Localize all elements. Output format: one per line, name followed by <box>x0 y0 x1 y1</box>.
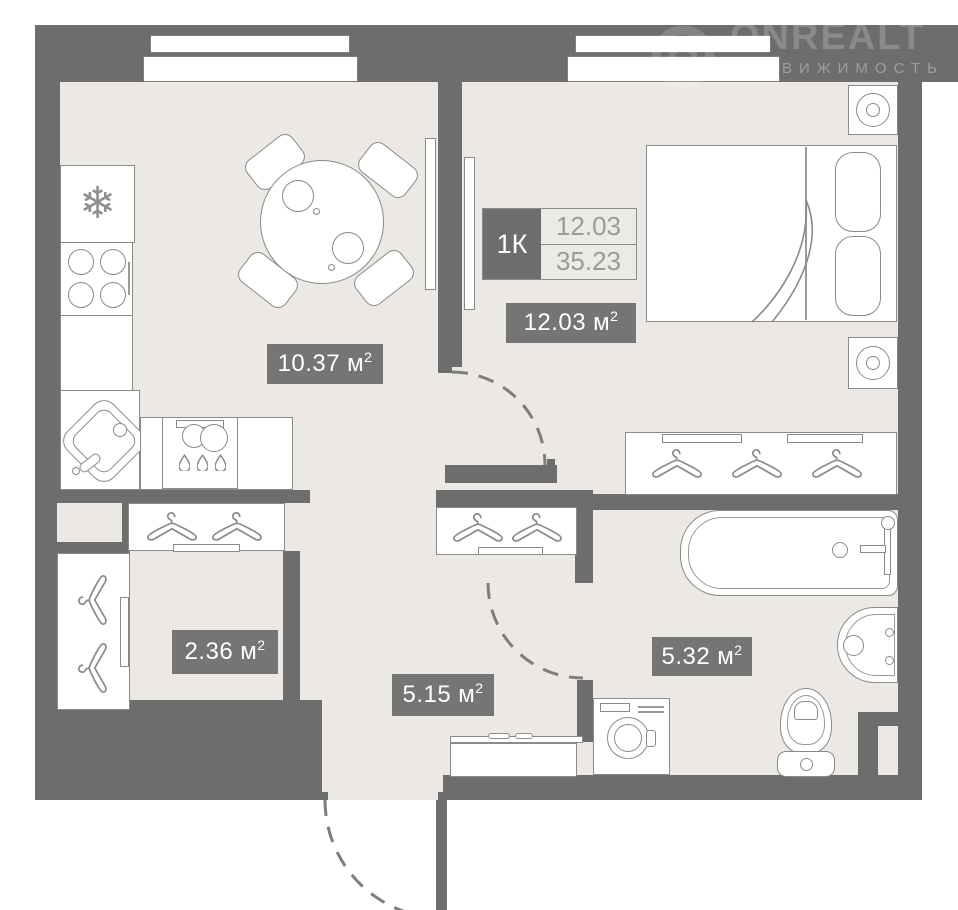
fridge: ❄ <box>60 165 135 243</box>
dining-table <box>260 160 384 284</box>
watermark: ONREALT НЕДВИЖИМОСТЬ <box>646 18 944 92</box>
wardrobe-shelf <box>787 434 863 443</box>
basin-tap <box>885 656 894 665</box>
entrance-floor-strip <box>322 775 443 800</box>
washer-door-hinge <box>646 730 656 747</box>
area-value: 10.37 <box>278 350 341 378</box>
table-spoon <box>328 264 335 271</box>
door-jamb <box>547 459 555 467</box>
bottom-wall <box>443 775 922 800</box>
burner <box>68 282 94 308</box>
area-value: 5.32 <box>661 643 710 671</box>
area-unit: м <box>240 638 257 665</box>
apartment-type-cell: 1К <box>483 209 541 279</box>
area-badge-wardrobe: 2.36 м2 <box>172 630 278 674</box>
hallway-top-wall <box>445 465 557 483</box>
bathtub-faucet-spout <box>860 545 886 553</box>
washer-detergent-tray <box>600 703 630 712</box>
wardrobe-right-wall <box>283 551 300 710</box>
area-unit: м <box>717 643 734 670</box>
kitchen-counter-left <box>60 315 133 391</box>
stove <box>60 242 133 316</box>
nightstand-lamp-center <box>866 356 880 370</box>
bed-pillow <box>835 236 881 316</box>
bathtub-inner <box>688 517 890 589</box>
washer-drum-inner <box>614 724 642 752</box>
area-badge-hallway: 5.15 м2 <box>392 674 494 716</box>
kitchen-window-inner <box>143 56 358 82</box>
door-swing-arc <box>325 800 443 910</box>
stove-handle <box>128 262 130 295</box>
washer-panel-line <box>638 711 664 713</box>
wardrobe-shelf <box>120 597 129 667</box>
bath-top-wall <box>593 494 898 510</box>
central-wall <box>438 82 462 367</box>
burner <box>100 249 126 275</box>
area-sup: 2 <box>364 349 372 365</box>
bath-duct-inset <box>878 726 898 775</box>
bed-headboard-line <box>805 147 807 320</box>
door-jamb <box>320 792 328 800</box>
room-area-cell: 12.03 <box>541 209 636 245</box>
burner <box>100 282 126 308</box>
right-wall <box>898 82 922 800</box>
area-badge-bedroom: 12.03 м2 <box>506 303 636 343</box>
watermark-tagline: НЕДВИЖИМОСТЬ <box>730 60 944 77</box>
bathtub-faucet-knob <box>881 516 895 530</box>
wardrobe-shelf <box>173 544 240 552</box>
basin-drain <box>843 635 864 656</box>
kitchen-window-outer <box>150 35 350 53</box>
console-item <box>515 733 533 739</box>
burner <box>68 249 94 275</box>
table-plate <box>332 232 364 264</box>
sliding-door-panel <box>425 138 436 290</box>
door-jamb <box>438 367 452 373</box>
hall-closet-top-wall <box>436 490 593 507</box>
toilet-flush <box>794 701 818 720</box>
area-sup: 2 <box>610 308 618 324</box>
door-jamb <box>438 792 446 800</box>
area-sup: 2 <box>734 642 742 658</box>
sink-faucet-knob <box>72 467 80 475</box>
area-badge-kitchen-living: 10.37 м2 <box>267 344 383 384</box>
snowflake-icon: ❄ <box>61 166 134 242</box>
area-unit: м <box>458 681 475 708</box>
area-value: 12.03 <box>524 309 587 337</box>
sink-drain <box>113 423 127 437</box>
total-area-cell: 35.23 <box>541 245 636 280</box>
table-spoon <box>313 208 320 215</box>
bathtub-drain <box>832 542 848 558</box>
area-sup: 2 <box>257 637 265 653</box>
basin-tap <box>885 628 894 637</box>
area-sup: 2 <box>475 680 483 696</box>
bath-left-wall-lower <box>577 680 593 742</box>
apartment-info-table: 1К 12.03 35.23 <box>482 208 637 280</box>
area-unit: м <box>593 309 610 336</box>
wardrobe-shelf <box>478 547 543 555</box>
hall-console <box>450 743 577 777</box>
console-item <box>488 733 510 739</box>
wardrobe-shelf <box>662 434 742 443</box>
area-value: 2.36 <box>184 638 233 666</box>
toilet-tank-button <box>800 758 813 771</box>
area-badge-bathroom: 5.32 м2 <box>652 637 752 676</box>
entrance-wall-stub <box>436 800 447 910</box>
area-unit: м <box>347 350 364 377</box>
shaft-inset <box>57 503 122 542</box>
bed-pillow <box>835 152 881 232</box>
bottom-left-wall-block <box>35 700 322 800</box>
table-plate <box>282 180 314 212</box>
bath-left-wall-upper <box>575 507 593 583</box>
washer-panel-line <box>638 706 664 708</box>
nightstand-lamp-center <box>866 103 880 117</box>
boiler-dial <box>200 424 228 452</box>
watermark-brand: ONREALT <box>730 18 944 58</box>
onrealt-logo-icon <box>646 18 720 92</box>
area-value: 5.15 <box>402 681 451 709</box>
sliding-door-panel <box>464 157 475 310</box>
floor-plan: ❄ <box>0 0 958 910</box>
